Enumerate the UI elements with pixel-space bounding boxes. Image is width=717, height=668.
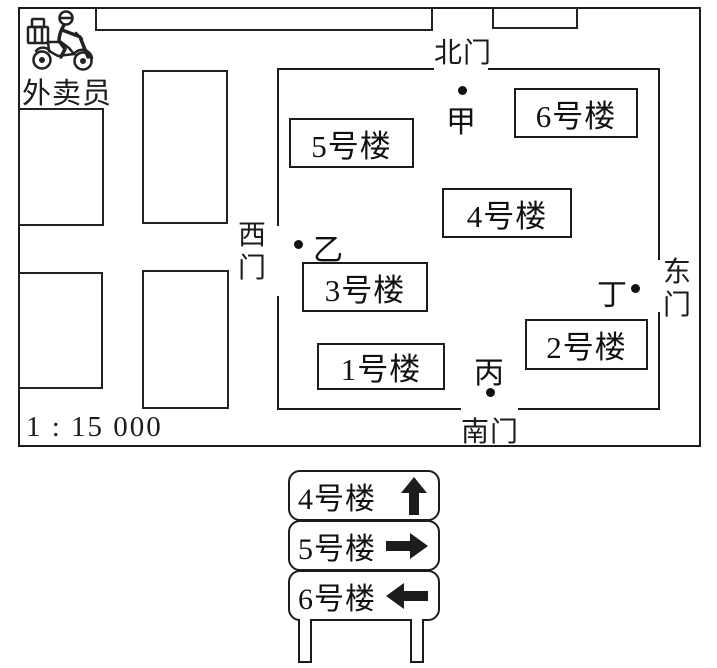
signpost-board-6: 6号楼 xyxy=(288,570,440,621)
arrow-right-icon xyxy=(385,530,429,562)
west-gate-label: 西门 xyxy=(237,218,267,284)
city-block xyxy=(142,70,228,224)
point-jia-label: 甲 xyxy=(446,97,476,141)
point-ding-dot xyxy=(631,284,640,293)
point-bing-label: 丙 xyxy=(474,348,504,392)
signpost-leg xyxy=(410,619,424,663)
building-2-box: 2号楼 xyxy=(525,319,648,370)
diagram-canvas: 外卖员 北门 南门 西门 东门 1号楼 2号楼 3号楼 4号楼 5号楼 6号楼 … xyxy=(0,0,717,668)
building-6-box: 6号楼 xyxy=(514,88,638,138)
building-3-box: 3号楼 xyxy=(302,262,428,312)
courier-label: 外卖员 xyxy=(11,70,123,112)
south-gate-label: 南门 xyxy=(450,410,530,450)
arrow-up-icon xyxy=(399,476,429,516)
west-gate-opening xyxy=(271,226,283,296)
delivery-scooter-icon xyxy=(26,9,102,73)
building-1-box: 1号楼 xyxy=(317,343,445,390)
north-gate-label: 北门 xyxy=(424,31,502,71)
city-block xyxy=(18,108,104,226)
building-5-box: 5号楼 xyxy=(289,118,414,168)
signpost-board-5-label: 5号楼 xyxy=(298,524,376,568)
city-block xyxy=(95,7,433,31)
point-yi-label: 乙 xyxy=(313,225,343,269)
signpost-board-4-label: 4号楼 xyxy=(298,474,376,518)
arrow-left-icon xyxy=(385,580,429,612)
signpost-board-5: 5号楼 xyxy=(288,520,440,571)
city-block xyxy=(492,7,578,29)
city-block xyxy=(18,272,103,389)
city-block xyxy=(142,270,229,409)
building-4-box: 4号楼 xyxy=(442,188,572,238)
signpost-leg xyxy=(298,619,312,663)
point-yi-dot xyxy=(294,240,303,249)
scale-label: 1 : 15 000 xyxy=(26,411,163,444)
signpost-board-6-label: 6号楼 xyxy=(298,574,376,618)
point-ding-label: 丁 xyxy=(597,270,627,314)
point-jia-dot xyxy=(458,86,467,95)
east-gate-label: 东门 xyxy=(662,255,692,321)
signpost-board-4: 4号楼 xyxy=(288,470,440,521)
